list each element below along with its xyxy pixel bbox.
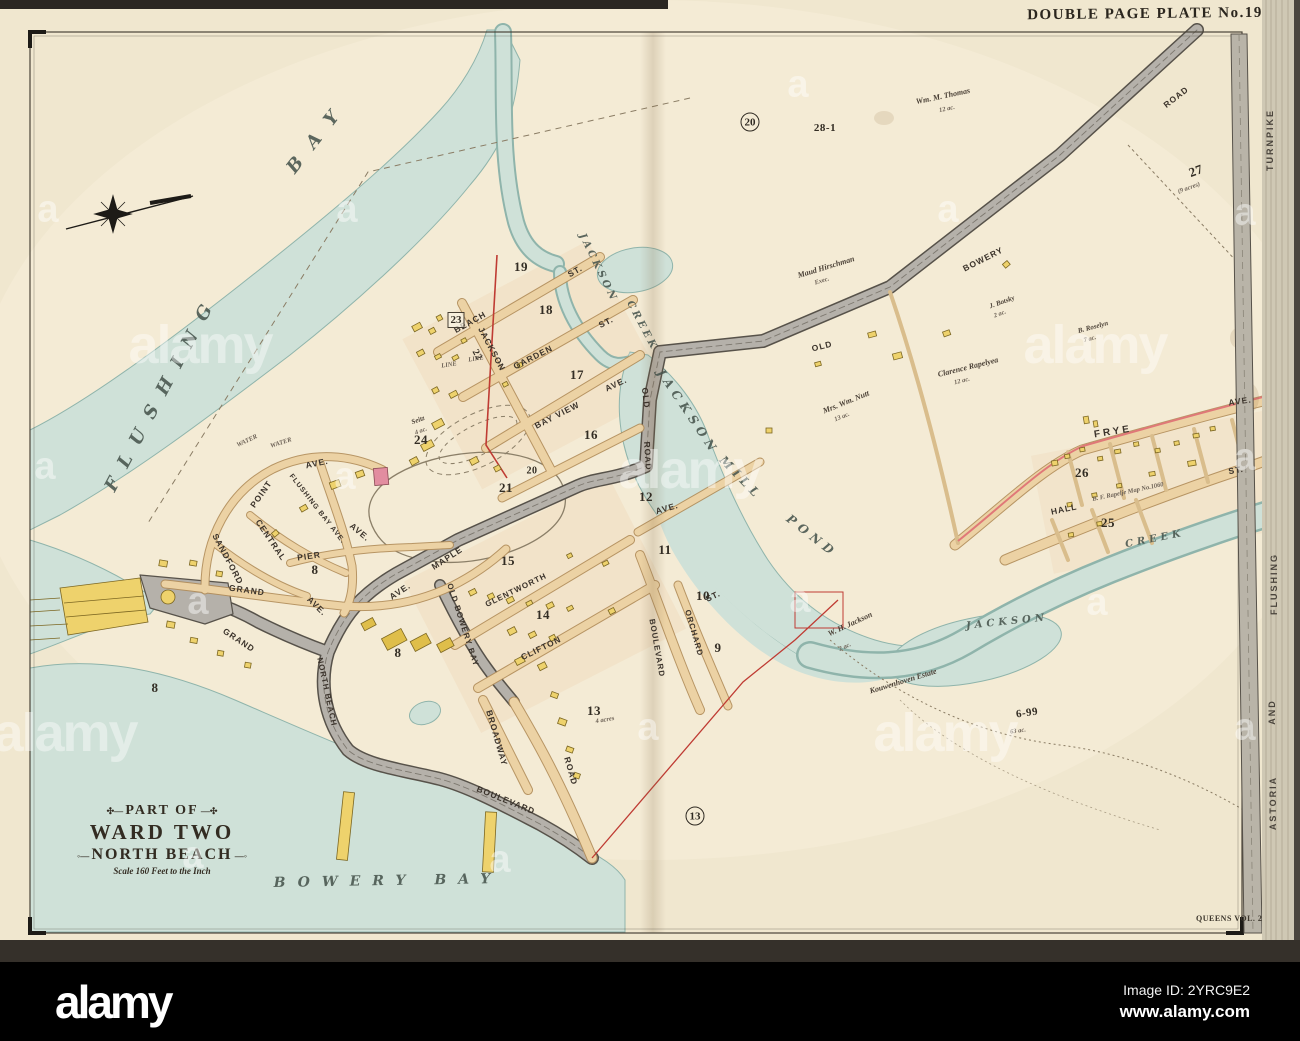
- title-cartouche: PART OF WARD TWO NORTH BEACH Scale 160 F…: [52, 803, 272, 876]
- alamy-url: www.alamy.com: [1120, 1002, 1250, 1022]
- volume-label: QUEENS VOL. 2: [1196, 914, 1262, 923]
- alamy-bar-info: Image ID: 2YRC9E2 www.alamy.com: [1120, 982, 1250, 1022]
- book-page-edge: [1262, 0, 1300, 962]
- photo-bottom-edge: [0, 940, 1300, 962]
- page-fold: [640, 32, 666, 933]
- atlas-page-photo: FLUSHINGBAYBOWERY BAYJACKSONCREEKJACKSON…: [0, 0, 1300, 962]
- cartouche-north-beach: NORTH BEACH: [52, 846, 272, 864]
- image-id-label: Image ID: 2YRC9E2: [1120, 982, 1250, 998]
- cartouche-scale: Scale 160 Feet to the Inch: [52, 866, 272, 876]
- alamy-logo: alamy: [55, 975, 170, 1029]
- cartouche-part-of: PART OF: [52, 803, 272, 819]
- photo-top-edge: [0, 0, 668, 9]
- alamy-stock-photo: FLUSHINGBAYBOWERY BAYJACKSONCREEKJACKSON…: [0, 0, 1300, 1041]
- plate-title: DOUBLE PAGE PLATE No.19: [1010, 5, 1280, 25]
- alamy-bottom-bar: alamy Image ID: 2YRC9E2 www.alamy.com: [0, 962, 1300, 1041]
- cartouche-ward-two: WARD TWO: [52, 820, 272, 845]
